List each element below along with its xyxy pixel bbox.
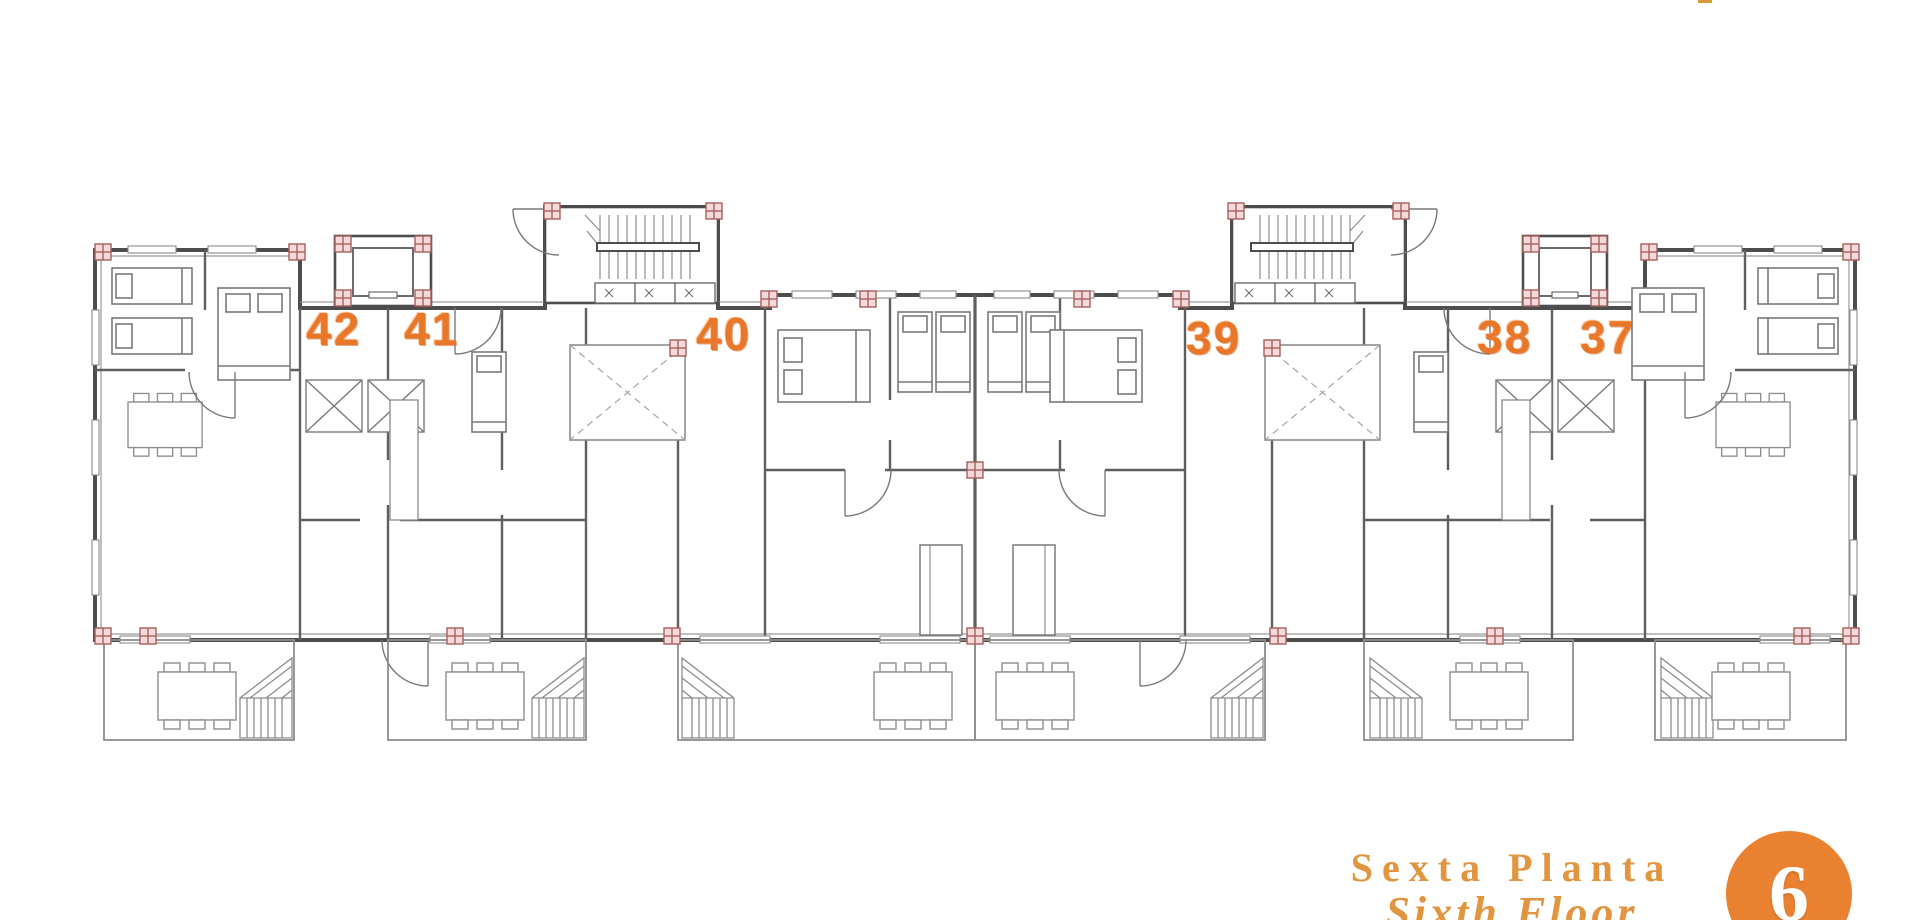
- light-well-right: [1265, 345, 1380, 440]
- elevator-left: [335, 236, 431, 306]
- unit-number-39: 39: [1186, 315, 1241, 361]
- floor-plan-page: 424140393837 Sexta Planta Sixth Floor 6: [0, 0, 1920, 920]
- floor-plan-drawing: [0, 0, 1920, 920]
- top-edge-logo-sliver: [1698, 0, 1712, 3]
- floor-number: 6: [1769, 849, 1809, 920]
- floor-title-spanish: Sexta Planta: [1322, 846, 1702, 890]
- unit-number-42: 42: [306, 306, 361, 352]
- light-well-left: [570, 345, 685, 440]
- title-block: Sexta Planta Sixth Floor: [1322, 846, 1702, 920]
- unit-number-41: 41: [404, 306, 459, 352]
- unit-number-37: 37: [1580, 314, 1635, 360]
- floor-title-english: Sixth Floor: [1322, 890, 1702, 920]
- unit-number-40: 40: [696, 311, 751, 357]
- elevator-right: [1523, 236, 1607, 306]
- terraces: [104, 640, 1846, 740]
- stair-storage-lockers: [595, 283, 715, 303]
- stair-storage-lockers: [1235, 283, 1355, 303]
- stair-core-right: [1232, 207, 1437, 303]
- stair-core-left: [513, 207, 718, 303]
- unit-number-38: 38: [1477, 314, 1532, 360]
